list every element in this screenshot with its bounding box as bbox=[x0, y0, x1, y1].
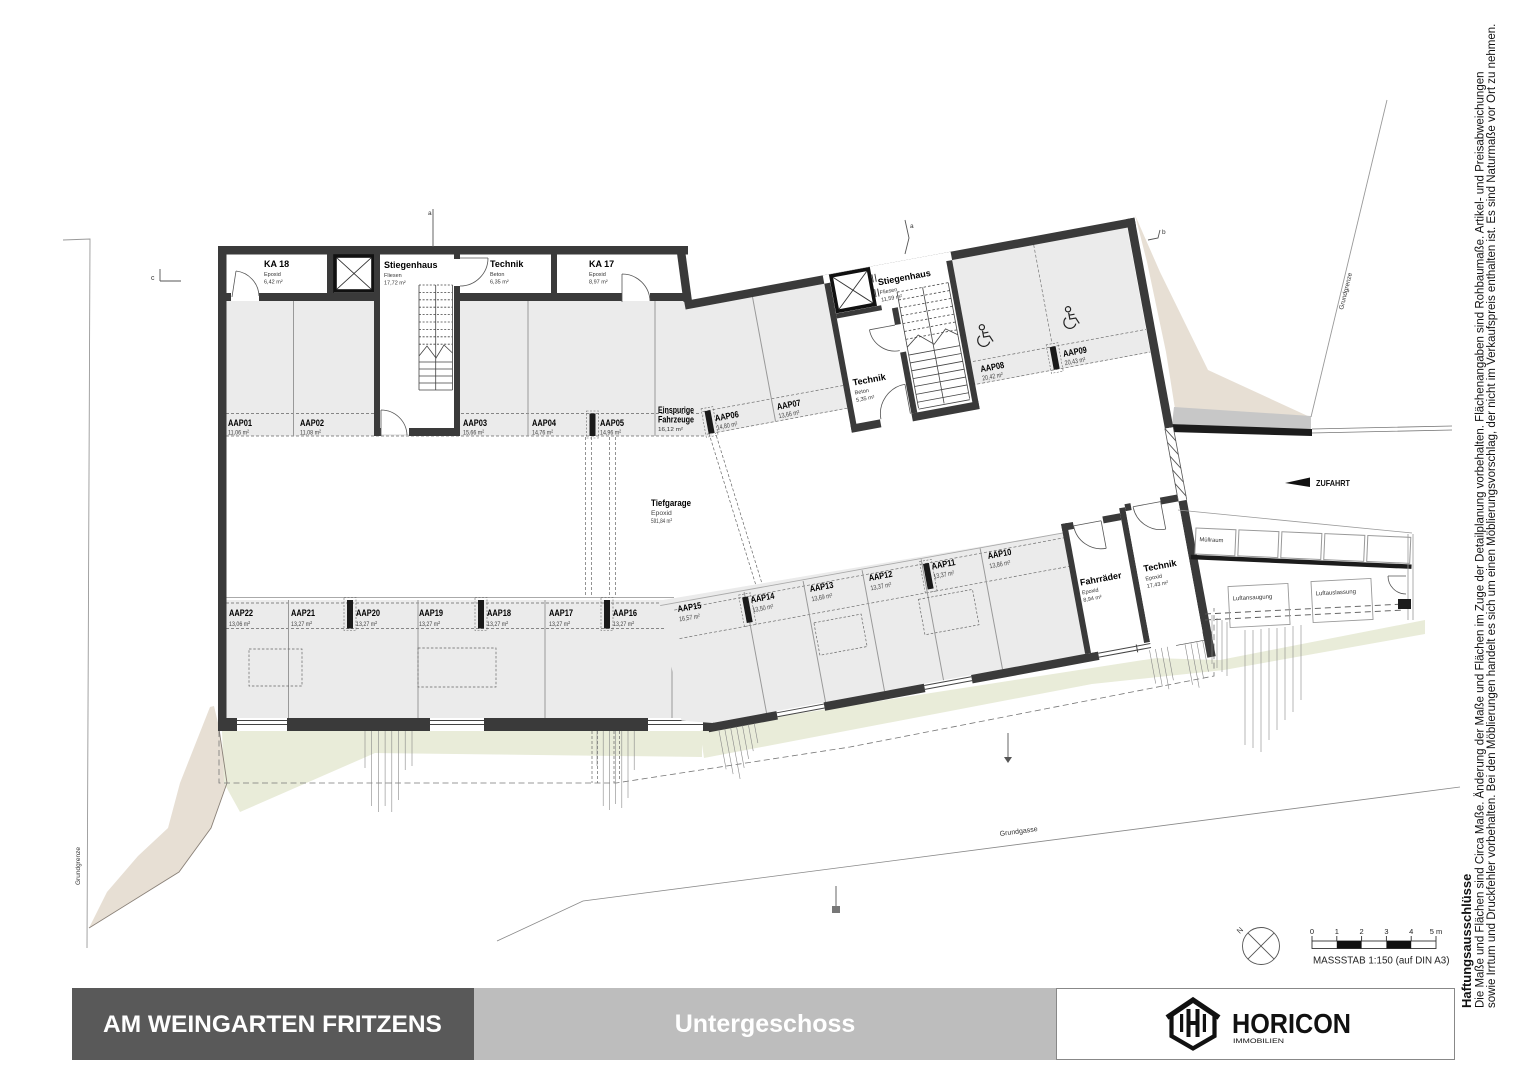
svg-text:14,96 m²: 14,96 m² bbox=[600, 430, 622, 437]
svg-text:Beton: Beton bbox=[490, 272, 504, 278]
svg-text:14,76 m²: 14,76 m² bbox=[532, 430, 554, 437]
svg-text:6,42 m²: 6,42 m² bbox=[264, 280, 283, 286]
svg-text:c: c bbox=[151, 275, 155, 282]
svg-text:5 m: 5 m bbox=[1430, 927, 1443, 936]
svg-text:Fliesen: Fliesen bbox=[384, 273, 402, 279]
svg-text:AAP22: AAP22 bbox=[229, 608, 253, 618]
svg-text:13,27 m²: 13,27 m² bbox=[356, 621, 378, 628]
svg-text:AAP20: AAP20 bbox=[356, 608, 380, 618]
svg-text:AAP16: AAP16 bbox=[613, 608, 637, 618]
svg-text:Haftungsausschlüsse: Haftungsausschlüsse bbox=[1459, 874, 1474, 1008]
svg-text:AAP02: AAP02 bbox=[300, 418, 324, 428]
svg-text:Fahrzeuge: Fahrzeuge bbox=[658, 415, 694, 425]
svg-text:Technik: Technik bbox=[490, 259, 524, 269]
svg-text:13,27 m²: 13,27 m² bbox=[419, 621, 441, 628]
svg-text:13,27 m²: 13,27 m² bbox=[613, 621, 635, 628]
svg-text:AAP03: AAP03 bbox=[463, 418, 487, 428]
svg-text:3: 3 bbox=[1384, 927, 1388, 936]
svg-text:Epoxid: Epoxid bbox=[264, 272, 281, 278]
svg-text:17,72 m²: 17,72 m² bbox=[384, 281, 406, 287]
svg-text:Epoxid: Epoxid bbox=[651, 510, 672, 517]
svg-text:0: 0 bbox=[1310, 927, 1314, 936]
svg-text:KA 17: KA 17 bbox=[589, 259, 614, 269]
svg-text:Untergeschoss: Untergeschoss bbox=[675, 1010, 856, 1038]
svg-text:15,66 m²: 15,66 m² bbox=[463, 430, 485, 437]
svg-text:11,06 m²: 11,06 m² bbox=[228, 430, 250, 437]
svg-text:13,27 m²: 13,27 m² bbox=[291, 621, 313, 628]
svg-text:AAP01: AAP01 bbox=[228, 418, 252, 428]
svg-text:a: a bbox=[910, 223, 914, 230]
svg-text:AAP17: AAP17 bbox=[549, 608, 573, 618]
svg-text:4: 4 bbox=[1409, 927, 1413, 936]
svg-text:11,08 m²: 11,08 m² bbox=[300, 430, 322, 437]
svg-text:a: a bbox=[428, 210, 432, 217]
svg-text:AAP21: AAP21 bbox=[291, 608, 315, 618]
svg-text:AAP18: AAP18 bbox=[487, 608, 511, 618]
svg-text:Einspurige: Einspurige bbox=[658, 405, 694, 415]
svg-text:AAP04: AAP04 bbox=[532, 418, 556, 428]
svg-text:13,06 m²: 13,06 m² bbox=[229, 621, 251, 628]
svg-text:ZUFAHRT: ZUFAHRT bbox=[1316, 478, 1351, 488]
svg-text:2: 2 bbox=[1360, 927, 1364, 936]
svg-text:IMMOBILIEN: IMMOBILIEN bbox=[1233, 1039, 1284, 1045]
svg-text:KA 18: KA 18 bbox=[264, 259, 289, 269]
svg-text:13,27 m²: 13,27 m² bbox=[487, 621, 509, 628]
svg-text:591,84 m²: 591,84 m² bbox=[651, 518, 673, 525]
svg-text:b: b bbox=[1162, 229, 1166, 236]
svg-text:Müllraum: Müllraum bbox=[1199, 537, 1223, 544]
svg-text:AAP05: AAP05 bbox=[600, 418, 624, 428]
svg-text:1: 1 bbox=[1335, 927, 1339, 936]
svg-text:AAP19: AAP19 bbox=[419, 608, 443, 618]
svg-text:Tiefgarage: Tiefgarage bbox=[651, 498, 691, 508]
svg-text:Stiegenhaus: Stiegenhaus bbox=[384, 260, 438, 270]
svg-text:MASSSTAB 1:150 (auf DIN A3): MASSSTAB 1:150 (auf DIN A3) bbox=[1313, 956, 1450, 967]
svg-text:Die Maße und Flächen sind Circ: Die Maße und Flächen sind Circa Maße. Än… bbox=[1475, 71, 1487, 1008]
svg-text:sowie Irrtum und Druckfehler v: sowie Irrtum und Druckfehler vorbehalten… bbox=[1486, 24, 1498, 1008]
svg-text:16,12 m²: 16,12 m² bbox=[658, 427, 683, 433]
svg-text:AM WEINGARTEN FRITZENS: AM WEINGARTEN FRITZENS bbox=[103, 1011, 442, 1038]
svg-text:6,35 m²: 6,35 m² bbox=[490, 280, 509, 286]
svg-text:HORICON: HORICON bbox=[1232, 1008, 1351, 1039]
svg-text:13,27 m²: 13,27 m² bbox=[549, 621, 571, 628]
svg-text:8,97 m²: 8,97 m² bbox=[589, 280, 608, 286]
svg-text:Grundgrenze: Grundgrenze bbox=[75, 847, 82, 885]
svg-text:Epoxid: Epoxid bbox=[589, 272, 606, 278]
